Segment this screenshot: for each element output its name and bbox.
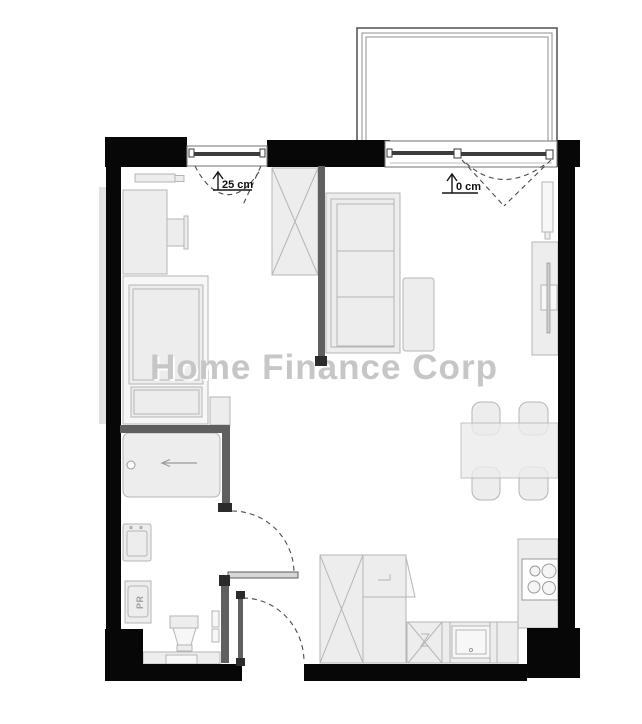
shower-drain <box>127 461 135 469</box>
wall-top-middle <box>267 140 390 167</box>
bathroom-wall-top <box>120 425 230 433</box>
wall-top-left <box>105 137 187 167</box>
nightstand <box>210 397 230 425</box>
coffee-table <box>403 278 434 351</box>
dimension-label-left: 25 cm <box>222 179 253 191</box>
wall-bottom-left <box>143 664 242 681</box>
washing-machine: PR <box>125 581 151 623</box>
wardrobe-bedroom <box>272 168 318 275</box>
stove-column <box>518 539 558 628</box>
wall-bottom-left-corner <box>105 629 143 681</box>
burner <box>530 566 540 576</box>
partition-bedroom-living <box>318 166 325 359</box>
wall-bottom-right-corner <box>527 628 580 678</box>
washing-machine-label: PR <box>135 595 145 609</box>
burner <box>528 581 540 593</box>
floor-plan-canvas: PR Home Finance Corp Home Finance Corp <box>0 0 642 724</box>
bathroom-sink <box>123 524 151 561</box>
desk-chair <box>167 216 188 249</box>
flush-panel <box>212 611 219 642</box>
bathroom-wall-right-lower <box>221 586 229 663</box>
hall-wall-stub <box>228 572 298 578</box>
tv-screen <box>547 263 550 333</box>
dimension-label-right: 0 cm <box>456 181 481 193</box>
bathroom-counter <box>143 652 220 664</box>
burner <box>543 582 556 595</box>
exterior-wall-lining <box>99 187 106 424</box>
wardrobe-kitchen-block <box>320 555 415 663</box>
wall-right <box>558 167 575 628</box>
tv-cabinet <box>532 242 558 355</box>
kitchen-counter-row <box>407 622 518 663</box>
burner <box>542 564 556 578</box>
floor-lamp <box>542 182 553 239</box>
bathroom-wall-cap-lower <box>219 575 230 586</box>
wall-top-right <box>557 140 580 167</box>
entrance-door-leaf <box>238 597 243 659</box>
bathroom-wall-right-upper <box>222 425 230 505</box>
wall-shelf <box>135 174 184 182</box>
shower <box>123 433 220 497</box>
balcony-outer-rail <box>357 28 557 150</box>
bathroom-wall-cap <box>218 503 232 512</box>
wall-left <box>106 167 121 629</box>
kitchen-sink <box>452 626 490 658</box>
sofa <box>326 193 400 353</box>
bed-pillow <box>131 387 202 417</box>
floor-plan: PR Home Finance Corp Home Finance Corp <box>0 0 642 724</box>
balcony <box>357 28 557 150</box>
wall-bottom-right <box>304 664 527 681</box>
dining-table <box>461 423 558 478</box>
desk <box>123 190 167 274</box>
partition-end-cap <box>315 356 327 366</box>
